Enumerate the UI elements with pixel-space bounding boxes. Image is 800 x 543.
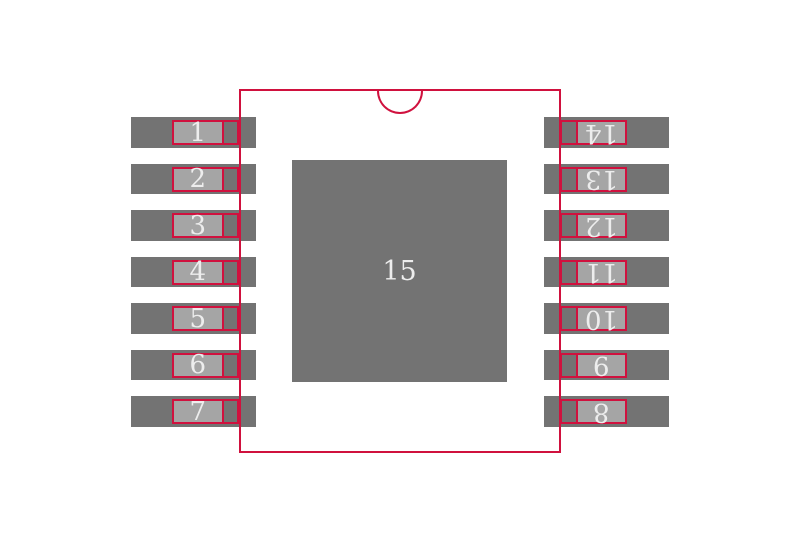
pad-number: 6 bbox=[189, 352, 206, 378]
pin-inner-cell bbox=[224, 401, 238, 422]
pad-copper-left-7: 7 bbox=[131, 396, 256, 427]
footprint-canvas: 15 1234567141312111098 bbox=[0, 0, 800, 543]
pin-paste-cell: 13 bbox=[576, 169, 626, 190]
pin-outline: 6 bbox=[172, 353, 239, 378]
pad-number: 7 bbox=[189, 399, 206, 425]
pin-inner-cell bbox=[224, 262, 238, 283]
pad-number: 14 bbox=[585, 120, 618, 146]
pad-copper-right-14: 14 bbox=[544, 117, 669, 148]
pad-number: 5 bbox=[189, 306, 206, 332]
pad-number: 10 bbox=[585, 306, 618, 332]
pin-outline: 8 bbox=[560, 399, 627, 424]
pad-copper-left-6: 6 bbox=[131, 350, 256, 381]
pin-paste-cell: 4 bbox=[174, 262, 224, 283]
pin-paste-cell: 8 bbox=[576, 401, 626, 422]
pin-paste-cell: 6 bbox=[174, 355, 224, 376]
pin-inner-cell bbox=[562, 262, 576, 283]
pin-outline: 11 bbox=[560, 260, 627, 285]
pad-number: 11 bbox=[585, 259, 618, 285]
pin-inner-cell bbox=[562, 169, 576, 190]
pin-outline: 1 bbox=[172, 120, 239, 145]
pin-inner-cell bbox=[224, 215, 238, 236]
pin-paste-cell: 3 bbox=[174, 215, 224, 236]
pin-outline: 13 bbox=[560, 167, 627, 192]
pin-outline: 2 bbox=[172, 167, 239, 192]
pin-paste-cell: 12 bbox=[576, 215, 626, 236]
pin-paste-cell: 5 bbox=[174, 308, 224, 329]
pin-paste-cell: 14 bbox=[576, 122, 626, 143]
pad-number: 12 bbox=[585, 213, 618, 239]
pin-outline: 14 bbox=[560, 120, 627, 145]
package-outline bbox=[239, 89, 561, 453]
pad-number: 13 bbox=[585, 166, 618, 192]
pin-outline: 4 bbox=[172, 260, 239, 285]
pin-paste-cell: 11 bbox=[576, 262, 626, 283]
pad-copper-right-9: 9 bbox=[544, 350, 669, 381]
pad-copper-right-13: 13 bbox=[544, 164, 669, 195]
pin-outline: 3 bbox=[172, 213, 239, 238]
pin-outline: 10 bbox=[560, 306, 627, 331]
pad-copper-left-1: 1 bbox=[131, 117, 256, 148]
pad-number: 1 bbox=[189, 120, 206, 146]
pin-inner-cell bbox=[224, 308, 238, 329]
pin-inner-cell bbox=[562, 122, 576, 143]
pad-number: 8 bbox=[593, 399, 610, 425]
pin-outline: 12 bbox=[560, 213, 627, 238]
pad-copper-left-4: 4 bbox=[131, 257, 256, 288]
pad-copper-right-12: 12 bbox=[544, 210, 669, 241]
pin-inner-cell bbox=[562, 215, 576, 236]
pad-copper-right-8: 8 bbox=[544, 396, 669, 427]
pad-number: 3 bbox=[189, 213, 206, 239]
pin-paste-cell: 10 bbox=[576, 308, 626, 329]
pin-inner-cell bbox=[562, 355, 576, 376]
pin-inner-cell bbox=[224, 355, 238, 376]
pad-copper-left-3: 3 bbox=[131, 210, 256, 241]
pad-number: 4 bbox=[189, 259, 206, 285]
pad-copper-right-11: 11 bbox=[544, 257, 669, 288]
pin-paste-cell: 1 bbox=[174, 122, 224, 143]
pad-number: 2 bbox=[189, 166, 206, 192]
pin-paste-cell: 9 bbox=[576, 355, 626, 376]
pin-outline: 7 bbox=[172, 399, 239, 424]
pin-paste-cell: 2 bbox=[174, 169, 224, 190]
pad-number: 9 bbox=[593, 352, 610, 378]
pin-outline: 5 bbox=[172, 306, 239, 331]
pad-copper-left-2: 2 bbox=[131, 164, 256, 195]
pad-copper-left-5: 5 bbox=[131, 303, 256, 334]
pad-copper-right-10: 10 bbox=[544, 303, 669, 334]
pin-paste-cell: 7 bbox=[174, 401, 224, 422]
pin-inner-cell bbox=[224, 122, 238, 143]
pin-inner-cell bbox=[224, 169, 238, 190]
pin-outline: 9 bbox=[560, 353, 627, 378]
pin-inner-cell bbox=[562, 401, 576, 422]
pin-inner-cell bbox=[562, 308, 576, 329]
